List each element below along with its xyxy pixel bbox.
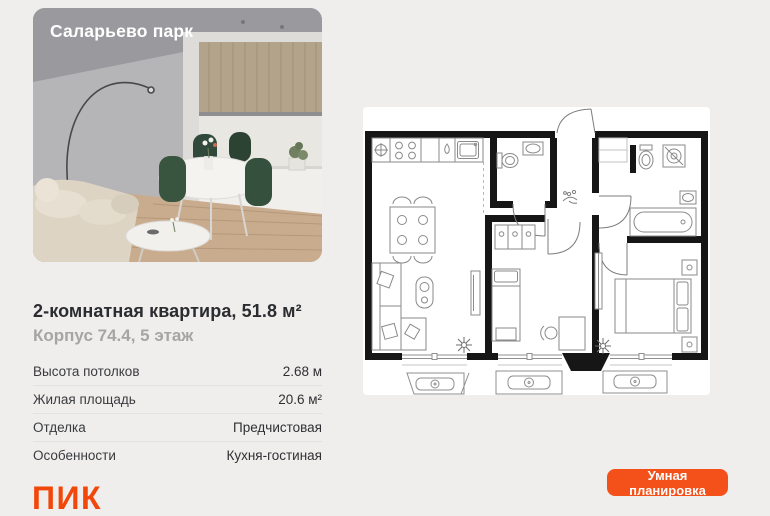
hall-plant-icon <box>563 190 577 203</box>
sofa-icon <box>372 263 426 350</box>
ac-units <box>407 371 667 394</box>
apartment-photo-render <box>33 8 322 262</box>
bed-icon <box>492 269 520 341</box>
bedroom-plant-icon <box>595 338 611 354</box>
bedroom-wardrobe-icon <box>595 253 602 309</box>
listing-subtitle: Корпус 74.4, 5 этаж <box>33 326 333 346</box>
bathroom-shelf <box>599 138 627 162</box>
dining-table-icon <box>390 197 435 263</box>
spec-row-ceiling-height: Высота потолков 2.68 м <box>33 358 322 385</box>
spec-label: Отделка <box>33 420 86 435</box>
spec-table: Высота потолков 2.68 м Жилая площадь 20.… <box>33 358 322 469</box>
spec-label: Высота потолков <box>33 364 140 379</box>
apartment-photo[interactable]: Саларьево парк <box>33 8 322 262</box>
spec-row-finishing: Отделка Предчистовая <box>33 413 322 441</box>
kitchen-counter <box>372 138 483 162</box>
bathroom-sink-icon <box>680 191 696 204</box>
side-table-icon <box>416 277 433 308</box>
floorplan-image[interactable] <box>363 107 710 395</box>
spec-value: 2.68 м <box>283 364 322 379</box>
listing-card: { "page": { "background": "#efeeec" }, "… <box>0 0 770 500</box>
spec-row-features: Особенности Кухня-гостиная <box>33 441 322 469</box>
washbasin-icon <box>523 142 543 155</box>
spotlight-icon <box>280 25 284 29</box>
spec-value: 20.6 м² <box>278 392 322 407</box>
desk-icon <box>541 317 585 350</box>
wardrobe-icon <box>495 225 535 249</box>
spec-row-living-area: Жилая площадь 20.6 м² <box>33 385 322 413</box>
bathroom-toilet-icon <box>639 145 653 169</box>
project-title: Саларьево парк <box>50 21 193 42</box>
pik-logo: ПИК <box>32 482 102 514</box>
floorplan-svg <box>363 107 710 395</box>
spec-label: Жилая площадь <box>33 392 136 407</box>
spec-value: Кухня-гостиная <box>226 448 322 463</box>
washing-machine-icon <box>663 145 685 167</box>
listing-title: 2-комнатная квартира, 51.8 м² <box>33 301 333 322</box>
spec-value: Предчистовая <box>233 420 322 435</box>
spotlight-icon <box>241 20 245 24</box>
plant-icon <box>456 337 472 353</box>
toilet-icon <box>497 153 518 168</box>
spec-label: Особенности <box>33 448 116 463</box>
bathtub-icon <box>630 208 696 236</box>
windows <box>402 354 672 366</box>
smart-layout-button[interactable]: Умная планировка <box>607 469 728 496</box>
tv-icon <box>471 271 480 315</box>
